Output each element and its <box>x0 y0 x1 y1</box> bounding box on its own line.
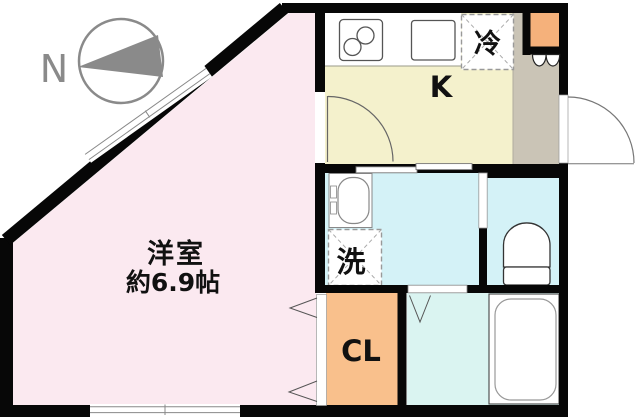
refrigerator-label: 冷 <box>474 29 501 60</box>
washer-label: 洗 <box>336 245 365 279</box>
north-compass: N <box>40 19 163 103</box>
wall-bottom <box>0 405 568 417</box>
washbasin-icon <box>329 174 372 228</box>
kitchen-label: K <box>430 70 454 104</box>
entrance-door <box>559 95 634 164</box>
living-room-label: 洋室 <box>147 238 205 270</box>
shoe-cabinet-band <box>530 47 561 55</box>
north-arrow-icon <box>78 35 163 77</box>
toilet-door <box>479 173 487 228</box>
wall-shoe-cabinet <box>523 13 531 55</box>
bath-threshold <box>408 285 467 293</box>
wall-closet-bath <box>398 293 407 405</box>
north-label: N <box>40 47 68 91</box>
window-bottom <box>90 404 240 417</box>
wall-washroom-left <box>315 163 325 293</box>
toilet-icon <box>504 223 551 285</box>
wall-toilet-top <box>479 170 568 178</box>
floor-plan: N 洋室 約6.9帖 K 冷 洗 CL <box>0 0 639 418</box>
living-room-size-label: 約6.9帖 <box>126 268 220 297</box>
sink-icon <box>412 21 456 61</box>
closet-label: CL <box>341 334 381 368</box>
wall-left <box>0 238 13 417</box>
wall-kitchen-left <box>315 3 325 95</box>
stove-icon <box>340 20 383 61</box>
floor-plan-drawing: N 洋室 約6.9帖 K 冷 洗 CL <box>0 0 639 418</box>
shoe-cabinet <box>530 13 559 47</box>
bathtub-icon <box>489 294 559 404</box>
